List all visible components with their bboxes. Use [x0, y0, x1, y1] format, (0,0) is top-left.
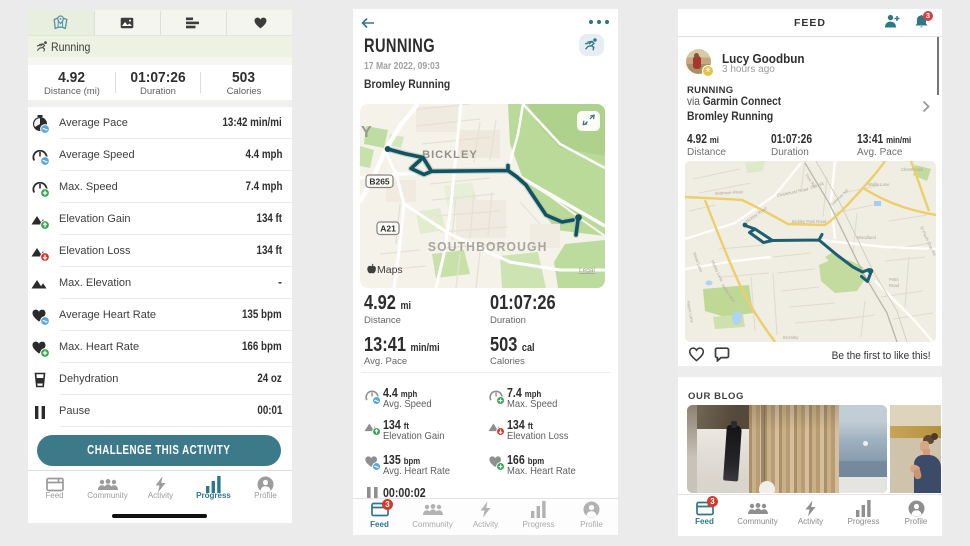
svg-text:Petts: Petts [889, 277, 899, 282]
svg-text:Bickley Park Road: Bickley Park Road [792, 219, 827, 224]
svg-text:SOUTHBOROUGH: SOUTHBOROUGH [428, 240, 548, 254]
svg-text:Wallis Lane: Wallis Lane [868, 182, 890, 187]
svg-text:A21: A21 [380, 224, 396, 234]
svg-text:Woodland: Woodland [857, 235, 876, 240]
svg-text:Bromley: Bromley [783, 335, 799, 340]
svg-text:Chesthouse: Chesthouse [901, 167, 924, 172]
svg-text:Y: Y [361, 124, 372, 141]
svg-text:BICKLEY: BICKLEY [422, 149, 478, 161]
svg-text:Road: Road [889, 283, 900, 288]
svg-text:Maps: Maps [377, 264, 403, 276]
svg-text:B265: B265 [369, 177, 390, 187]
svg-text:Legal: Legal [579, 267, 595, 274]
